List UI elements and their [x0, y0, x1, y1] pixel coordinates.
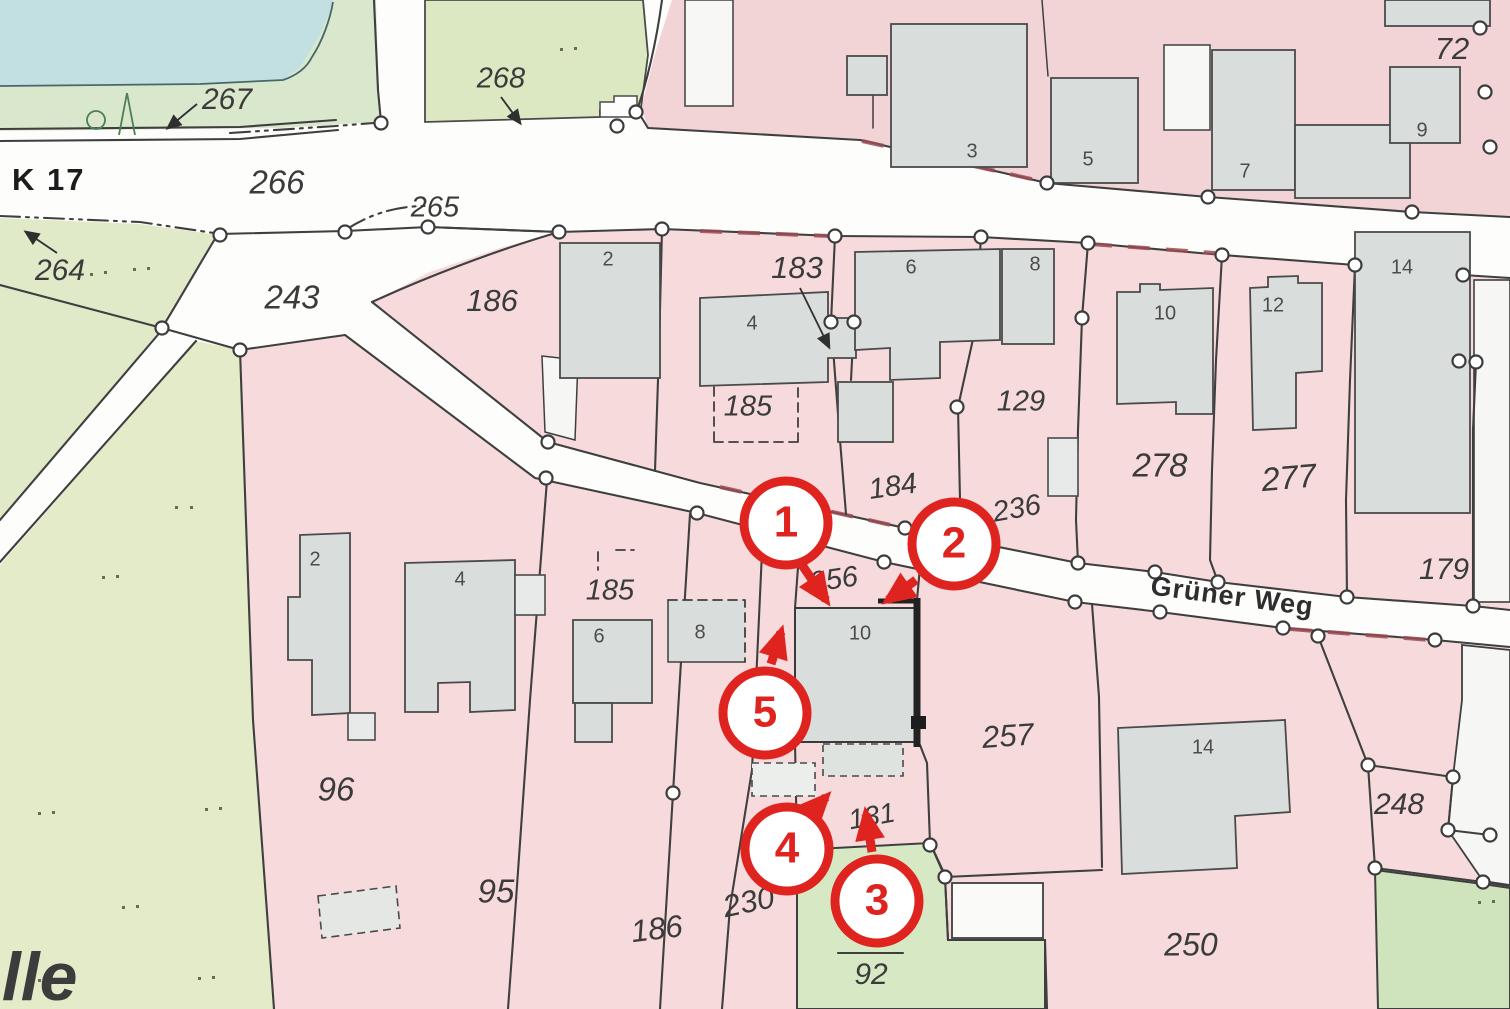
building-small-north	[847, 56, 887, 95]
parcel-label-248: 248	[1373, 788, 1424, 821]
survey-point	[1154, 606, 1167, 619]
parcel-label-186-north: 186	[466, 283, 518, 318]
parcel-label-257: 257	[980, 716, 1037, 755]
marker-2-number: 2	[942, 519, 966, 568]
parcel-label-92: 92	[854, 958, 888, 991]
parcel-label-278: 278	[1131, 447, 1188, 484]
marker-1-number: 1	[774, 498, 798, 547]
white-parcel-east	[1474, 280, 1510, 602]
survey-point	[1072, 557, 1085, 570]
survey-point	[1069, 596, 1082, 609]
survey-point	[878, 556, 891, 569]
house-number-2-south: 2	[309, 548, 320, 570]
building-north-white-2	[1164, 45, 1210, 130]
parcel-label-264: 264	[34, 254, 85, 287]
building-annex-b	[752, 763, 815, 796]
survey-point	[1484, 141, 1497, 154]
survey-point	[691, 507, 704, 520]
survey-point	[540, 472, 553, 485]
house-number-12-north: 12	[1262, 294, 1284, 316]
parcel-label-265: 265	[410, 192, 460, 224]
survey-point	[1362, 759, 1375, 772]
parcel-label-243: 243	[263, 279, 320, 316]
house-number-10-north: 10	[1154, 302, 1176, 324]
house-number-4-south: 4	[454, 568, 465, 590]
building-house-6-south	[573, 620, 652, 703]
house-number-6-south: 6	[593, 625, 604, 647]
survey-point	[1474, 22, 1487, 35]
survey-point	[924, 839, 937, 852]
survey-point	[1216, 249, 1229, 262]
house-number-4-north: 4	[746, 312, 757, 334]
parcel-label-268: 268	[476, 63, 525, 95]
building-north-white-1	[685, 0, 733, 106]
survey-point	[1479, 86, 1492, 99]
marker-5-number: 5	[753, 688, 777, 737]
survey-point	[951, 401, 964, 414]
survey-point	[1470, 356, 1483, 369]
point-symbol	[911, 716, 926, 729]
parcel-label-185-south: 185	[586, 575, 635, 607]
parcel-label-72: 72	[1435, 31, 1469, 66]
survey-point	[1341, 591, 1354, 604]
building-house-5	[1051, 78, 1138, 183]
building-house-10-south-highlighted	[795, 598, 926, 747]
house-number-7: 7	[1239, 160, 1250, 182]
parcel-label-277: 277	[1259, 456, 1320, 498]
survey-point	[1429, 634, 1442, 647]
road-label-k17: K 17	[12, 162, 85, 197]
survey-point	[1447, 771, 1460, 784]
building-annex-2-south	[348, 713, 375, 740]
building-house-8-south	[668, 600, 745, 662]
survey-point	[825, 316, 838, 329]
survey-point	[1312, 630, 1325, 643]
survey-point	[553, 226, 566, 239]
house-number-3: 3	[966, 140, 977, 162]
survey-point	[939, 871, 952, 884]
survey-point	[611, 120, 624, 133]
house-number-14-south: 14	[1192, 736, 1214, 758]
parcel-label-96: 96	[318, 771, 355, 808]
green-parcel-southeast	[1375, 870, 1510, 1009]
building-annex-6-south	[575, 703, 612, 742]
house-number-10-south: 10	[849, 622, 871, 644]
house-number-14-north: 14	[1391, 256, 1413, 278]
parcel-label-266: 266	[248, 164, 305, 201]
parcel-label-129: 129	[997, 386, 1045, 418]
survey-point	[1406, 206, 1419, 219]
survey-point	[829, 230, 842, 243]
parcel-label-183: 183	[771, 250, 823, 285]
building-south-white	[952, 883, 1043, 938]
building-house-3	[891, 24, 1027, 167]
survey-point	[848, 316, 861, 329]
survey-point	[667, 787, 680, 800]
survey-point	[234, 344, 247, 357]
parcel-label-250: 250	[1163, 926, 1218, 962]
building-annex-4-south	[515, 575, 545, 615]
parcel-label-185-north: 185	[724, 391, 773, 423]
survey-point	[339, 226, 352, 239]
marker-3-number: 3	[865, 876, 889, 925]
survey-point	[1076, 312, 1089, 325]
survey-point	[975, 231, 988, 244]
parcel-label-95: 95	[478, 873, 515, 910]
survey-point	[1467, 600, 1480, 613]
survey-point	[1484, 829, 1497, 842]
survey-point	[656, 223, 669, 236]
survey-point	[375, 117, 388, 130]
house-number-5: 5	[1082, 148, 1093, 170]
survey-point	[1369, 862, 1382, 875]
survey-point	[542, 436, 555, 449]
survey-point	[214, 229, 227, 242]
building-annex-6-north	[838, 382, 893, 442]
building-small-236	[1048, 438, 1078, 496]
survey-point	[1453, 355, 1466, 368]
building-top-right	[1385, 0, 1490, 26]
building-house-8-north	[1002, 249, 1054, 344]
parcel-label-184: 184	[867, 467, 919, 505]
parcel-label-186-south: 186	[629, 908, 685, 949]
survey-point	[1477, 876, 1490, 889]
building-annex-a	[823, 744, 903, 776]
survey-point	[1041, 177, 1054, 190]
house-number-6-north: 6	[905, 256, 916, 278]
survey-point	[630, 106, 643, 119]
building-house-7	[1212, 50, 1295, 190]
survey-point	[1442, 824, 1455, 837]
survey-point	[1349, 259, 1362, 272]
marker-3-arrow	[866, 814, 872, 852]
marker-4-number: 4	[775, 824, 800, 873]
edge-text-partial: elle	[0, 939, 77, 1009]
survey-point	[156, 322, 169, 335]
parcel-label-267: 267	[201, 83, 253, 116]
house-number-8-north: 8	[1029, 253, 1040, 275]
parcel-label-179: 179	[1419, 553, 1469, 586]
survey-point	[1457, 269, 1470, 282]
house-number-2-north: 2	[602, 248, 613, 270]
water-area	[0, 0, 333, 86]
house-number-8-south: 8	[694, 621, 705, 643]
cadastral-map: 267 266 265 264 268 243 186 183 185 129 …	[0, 0, 1510, 1009]
survey-point	[1082, 237, 1095, 250]
survey-point	[1202, 191, 1215, 204]
house-number-9: 9	[1416, 119, 1427, 141]
survey-point	[1277, 622, 1290, 635]
